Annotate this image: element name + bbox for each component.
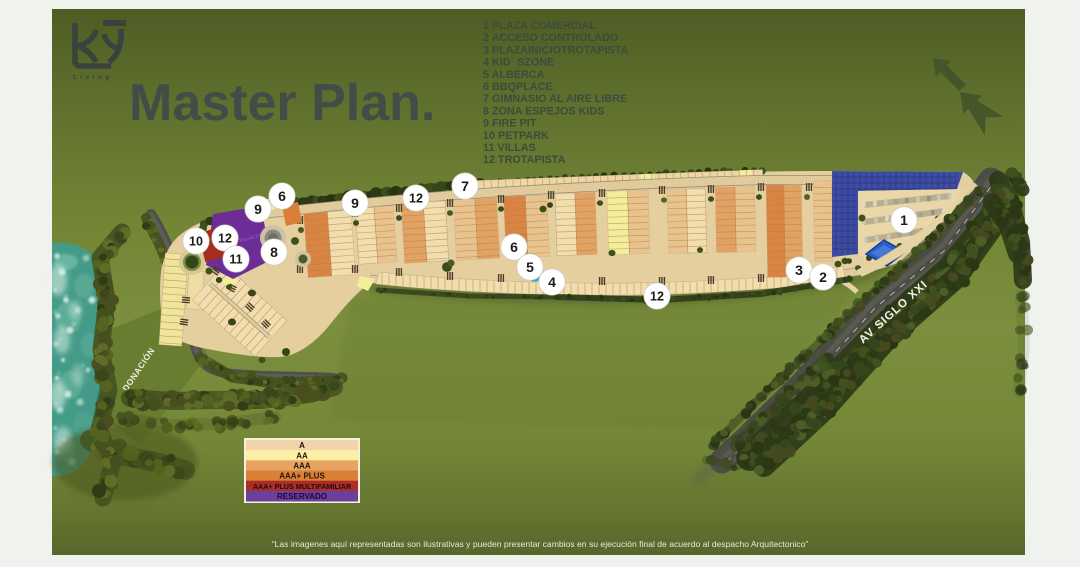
svg-text:6: 6 [278, 188, 286, 204]
svg-text:“Las imagenes aquí representad: “Las imagenes aquí representadas son ilu… [272, 539, 809, 549]
svg-text:3 PLAZAINICIOTROTAPISTA: 3 PLAZAINICIOTROTAPISTA [483, 44, 629, 56]
svg-text:2 ACCESO CONTROLADO: 2 ACCESO CONTROLADO [483, 32, 618, 44]
svg-text:AAA: AAA [293, 462, 311, 471]
svg-text:8: 8 [270, 244, 278, 260]
svg-text:RESERVADO: RESERVADO [277, 492, 327, 501]
svg-text:Master Plan.: Master Plan. [129, 74, 435, 132]
svg-text:12: 12 [218, 231, 232, 245]
svg-text:12: 12 [409, 191, 423, 205]
svg-text:7 GIMNASIO AL AIRE LIBRE: 7 GIMNASIO AL AIRE LIBRE [483, 93, 627, 105]
svg-text:1 PLAZA COMERCIAL: 1 PLAZA COMERCIAL [483, 20, 596, 32]
svg-text:9: 9 [254, 201, 262, 217]
svg-text:Living: Living [73, 74, 113, 81]
svg-text:11 VILLAS: 11 VILLAS [483, 142, 536, 154]
svg-text:10 PETPARK: 10 PETPARK [483, 130, 549, 142]
svg-text:8 ZONA ESPEJOS KIDS: 8 ZONA ESPEJOS KIDS [483, 105, 604, 117]
svg-text:7: 7 [461, 178, 469, 194]
svg-text:5: 5 [526, 259, 534, 275]
svg-text:12: 12 [650, 289, 664, 303]
svg-text:11: 11 [229, 252, 242, 266]
svg-text:5 ALBERCA: 5 ALBERCA [483, 69, 545, 81]
svg-text:2: 2 [819, 269, 827, 285]
svg-text:4: 4 [548, 274, 556, 290]
svg-text:AAA+ PLUS MULTIFAMILIAR: AAA+ PLUS MULTIFAMILIAR [253, 482, 352, 491]
svg-text:6 BBQPLACE: 6 BBQPLACE [483, 81, 553, 93]
svg-text:1: 1 [900, 212, 908, 228]
svg-text:10: 10 [189, 234, 203, 248]
svg-text:AAA+ PLUS: AAA+ PLUS [279, 472, 325, 481]
svg-text:3: 3 [795, 262, 803, 278]
svg-text:AA: AA [296, 451, 308, 460]
svg-text:12 TROTAPISTA: 12 TROTAPISTA [483, 154, 566, 166]
svg-text:A: A [299, 441, 305, 450]
svg-text:4 KID´ SZONE: 4 KID´ SZONE [483, 57, 554, 69]
svg-text:6: 6 [510, 239, 518, 255]
svg-text:9: 9 [351, 195, 359, 211]
svg-text:9 FIRE PIT: 9 FIRE PIT [483, 118, 537, 130]
